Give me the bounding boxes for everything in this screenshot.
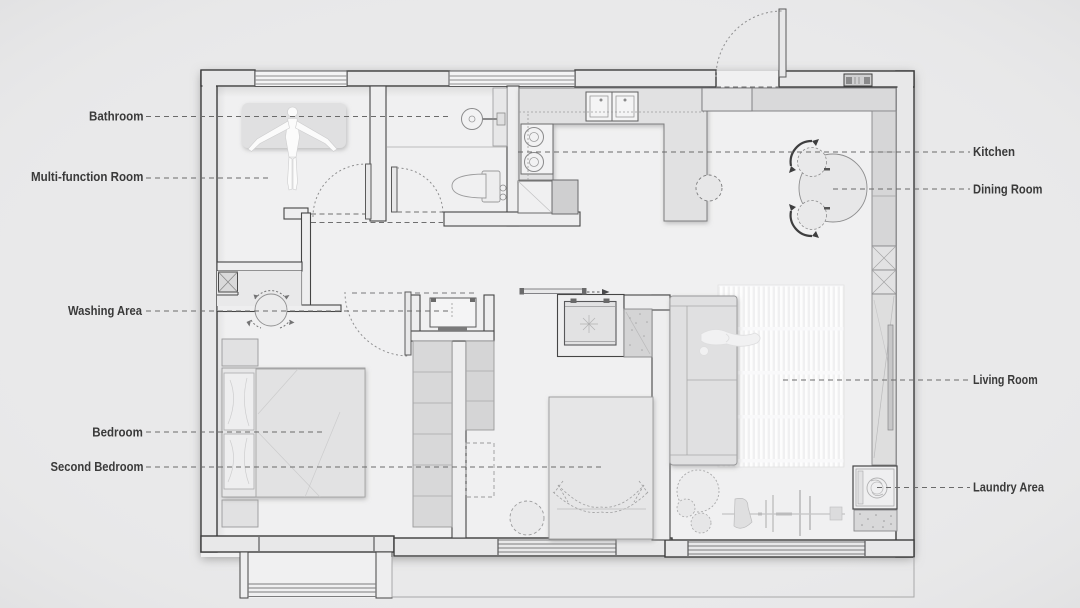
svg-text:Laundry Area: Laundry Area [973,480,1045,495]
svg-text:Bedroom: Bedroom [92,425,143,440]
svg-text:Washing Area: Washing Area [68,303,143,318]
svg-text:Dining Room: Dining Room [973,182,1043,197]
svg-text:Multi-function Room: Multi-function Room [31,169,143,184]
svg-text:Bathroom: Bathroom [89,109,144,124]
svg-text:Living Room: Living Room [973,372,1038,387]
svg-text:Kitchen: Kitchen [973,144,1015,159]
svg-text:Second Bedroom: Second Bedroom [51,459,144,474]
